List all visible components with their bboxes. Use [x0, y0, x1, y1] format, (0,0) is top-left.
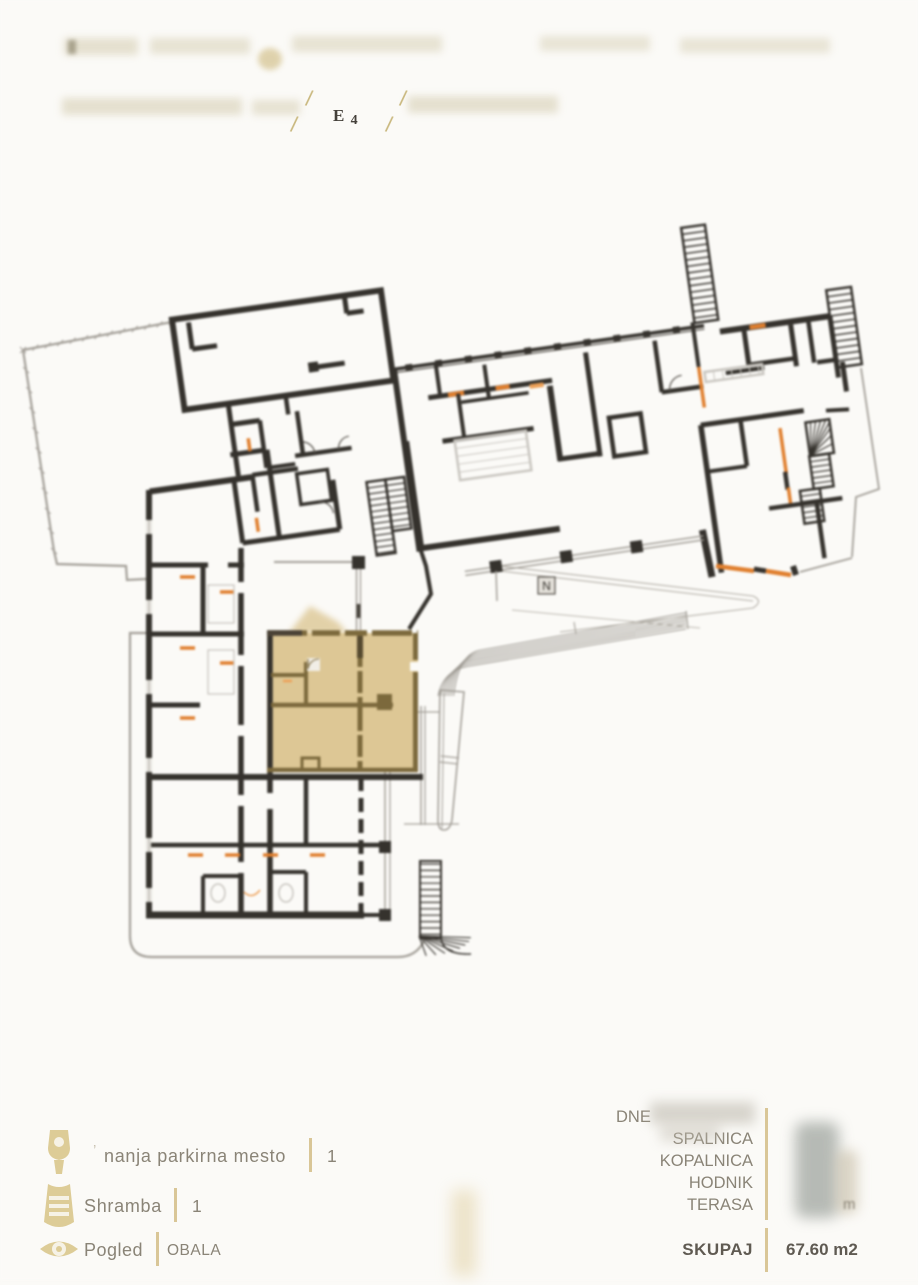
svg-text:N: N — [542, 579, 551, 593]
